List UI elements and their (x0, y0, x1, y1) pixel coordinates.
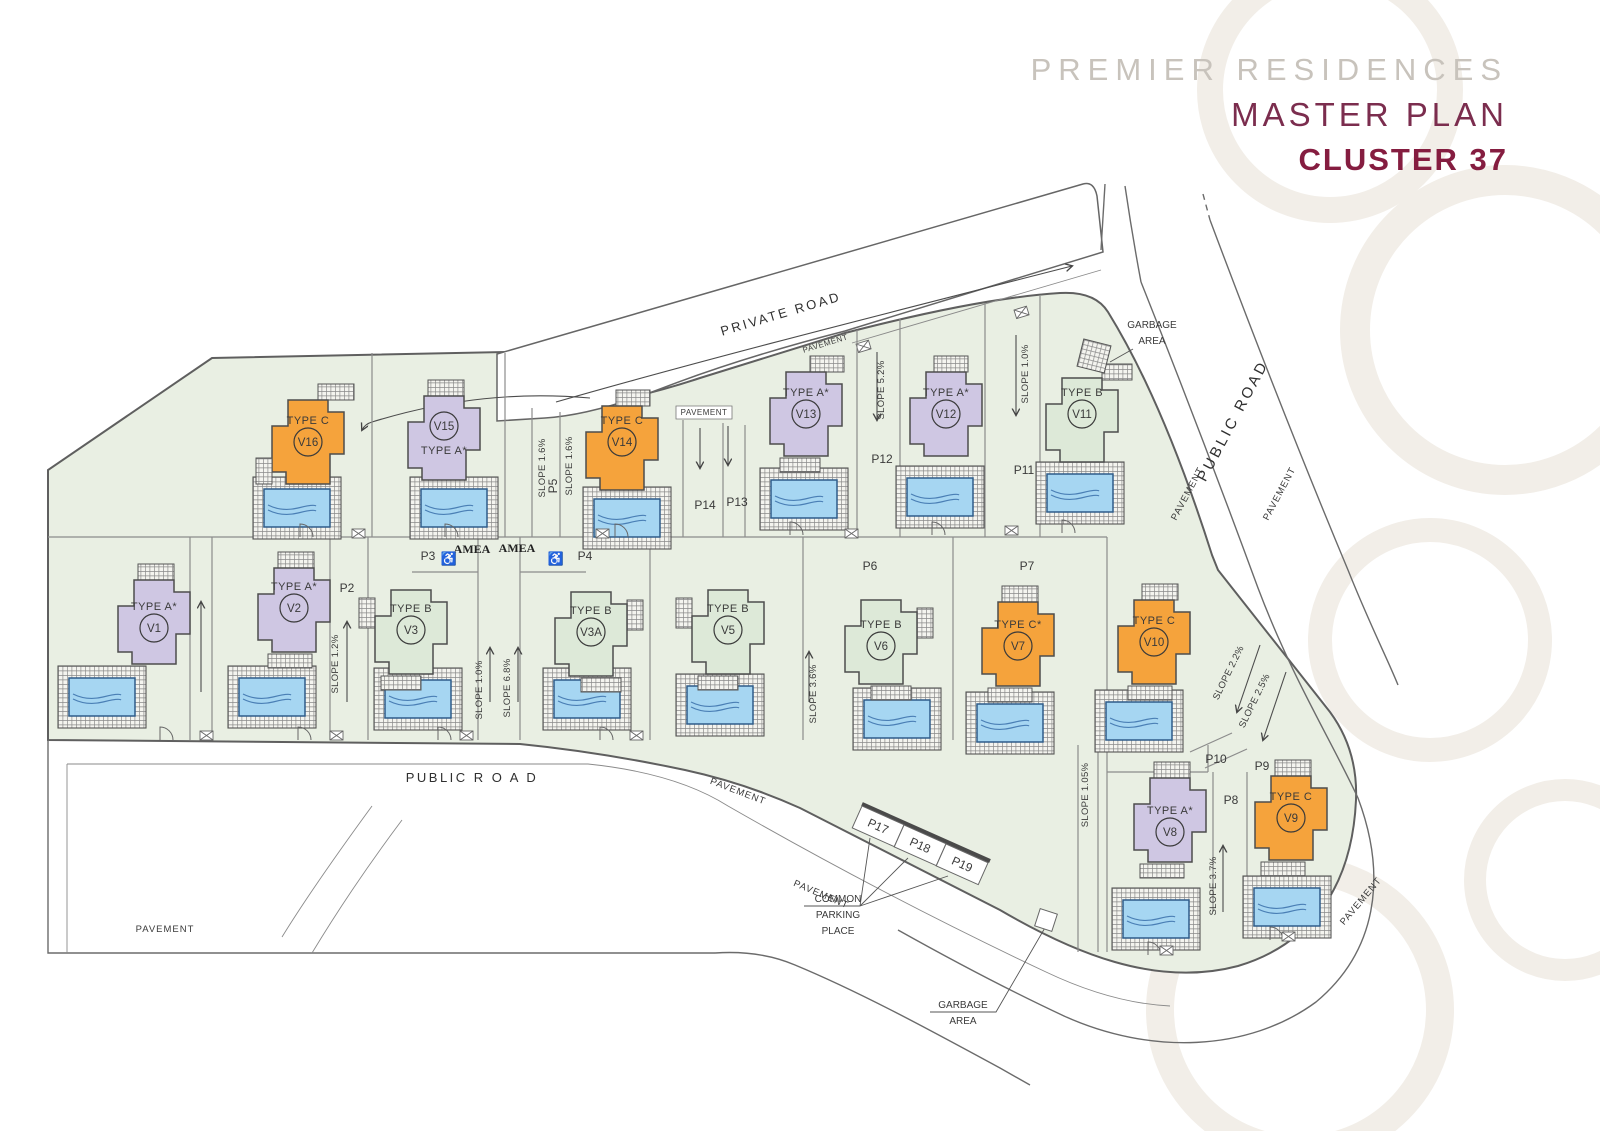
pool (1036, 462, 1124, 524)
parking-p6: P6 (863, 559, 878, 573)
villa-type-label: TYPE C (1133, 615, 1176, 627)
slope-label: SLOPE 3.7% (1208, 856, 1219, 915)
pool (58, 666, 146, 728)
slope-label: SLOPE 1.05% (1080, 762, 1091, 827)
villa-id-label: V13 (796, 409, 816, 421)
public-road-right-label: PUBLIC ROAD (1194, 357, 1272, 484)
title-block: PREMIER RESIDENCES MASTER PLAN CLUSTER 3… (1031, 52, 1508, 178)
villa-type-label: TYPE C (287, 415, 330, 427)
villa-id-label: V1 (147, 623, 161, 635)
garbage-label: AREA (949, 1016, 977, 1027)
slope-label: SLOPE 1.2% (330, 634, 341, 693)
villa-type-label: TYPE C (1270, 791, 1313, 803)
villa-id-label: V11 (1072, 409, 1092, 421)
parking-p13: P13 (726, 495, 748, 509)
common-parking-label: COMMON (815, 894, 862, 905)
pool (543, 668, 631, 730)
slope-label: SLOPE 6.8% (502, 658, 513, 717)
parking-p8: P8 (1224, 793, 1239, 807)
slope-label: SLOPE 1.0% (474, 660, 485, 719)
pool (253, 477, 341, 539)
villa-id-label: V5 (721, 625, 735, 637)
wheelchair-icon: ♿ (548, 551, 564, 566)
villa-type-label: TYPE A* (1147, 805, 1194, 817)
parking-p5: P5 (546, 478, 560, 493)
pool (1112, 888, 1200, 950)
villa-id-label: V7 (1011, 641, 1025, 653)
villa-type-label: TYPE B (1061, 387, 1103, 399)
slope-label: SLOPE 5.2% (876, 360, 887, 419)
villa-type-label: TYPE B (860, 619, 902, 631)
villa-id-label: V3A (580, 627, 602, 639)
amea-label: AMEA (454, 542, 491, 556)
master-plan-page: PREMIER RESIDENCES MASTER PLAN CLUSTER 3… (0, 0, 1600, 1131)
parking-p3: P3 (421, 549, 436, 563)
pool (583, 487, 671, 549)
parking-p11: P11 (1014, 463, 1035, 477)
cluster-title: CLUSTER 37 (1031, 142, 1508, 178)
garbage-label: GARBAGE (938, 1000, 988, 1011)
pool (896, 466, 984, 528)
garbage-area-bottom: GARBAGE AREA (930, 909, 1057, 1027)
villa-id-label: V16 (298, 437, 318, 449)
common-parking-label: PLACE (822, 926, 855, 937)
parking-p7: P7 (1020, 559, 1035, 573)
amea-label: AMEA (499, 541, 536, 555)
garbage-label: GARBAGE (1127, 320, 1177, 331)
villa-type-label: TYPE A* (783, 387, 830, 399)
pavement-label: PAVEMENT (136, 924, 195, 935)
slope-label: SLOPE 1.6% (564, 436, 575, 495)
villa-id-label: V9 (1284, 813, 1298, 825)
wheelchair-icon: ♿ (441, 551, 457, 566)
villa-type-label: TYPE C* (994, 619, 1042, 631)
villa-id-label: V10 (1144, 637, 1164, 649)
villa-id-label: V2 (287, 603, 301, 615)
villa-id-label: V8 (1163, 827, 1177, 839)
villa-type-label: TYPE A* (131, 601, 178, 613)
villa-type-label: TYPE B (570, 605, 612, 617)
slope-label: SLOPE 3.6% (808, 664, 819, 723)
villa-type-label: TYPE A* (271, 581, 318, 593)
plan-title: MASTER PLAN (1031, 96, 1508, 134)
parking-p4: P4 (578, 549, 593, 563)
villa-type-label: TYPE C (601, 415, 644, 427)
parking-p9: P9 (1255, 759, 1270, 773)
garbage-label: AREA (1138, 336, 1166, 347)
slope-label: SLOPE 1.0% (1020, 344, 1031, 403)
pavement-label: PAVEMENT (681, 408, 728, 417)
common-parking-label: PARKING (816, 910, 860, 921)
parking-p2: P2 (340, 581, 355, 595)
pool (228, 666, 316, 728)
villa-type-label: TYPE A* (923, 387, 970, 399)
pool (410, 477, 498, 539)
villa-type-label: TYPE B (390, 603, 432, 615)
pavement-label: PAVEMENT (1261, 465, 1298, 522)
villa-type-label: TYPE B (707, 603, 749, 615)
public-road-bottom-label: PUBLIC R O A D (406, 770, 539, 785)
parking-p12: P12 (871, 452, 893, 466)
parking-p10: P10 (1205, 752, 1227, 766)
villa-id-label: V6 (874, 641, 888, 653)
slope-label: SLOPE 1.6% (537, 438, 548, 497)
pool (760, 468, 848, 530)
parking-p14: P14 (694, 498, 716, 512)
villa-id-label: V14 (612, 437, 633, 449)
villa-id-label: V3 (404, 625, 418, 637)
villa-id-label: V15 (434, 421, 454, 433)
villa-id-label: V12 (936, 409, 956, 421)
villa-type-label: TYPE A* (421, 445, 468, 457)
pool (1243, 876, 1331, 938)
brand-title: PREMIER RESIDENCES (1031, 52, 1508, 88)
